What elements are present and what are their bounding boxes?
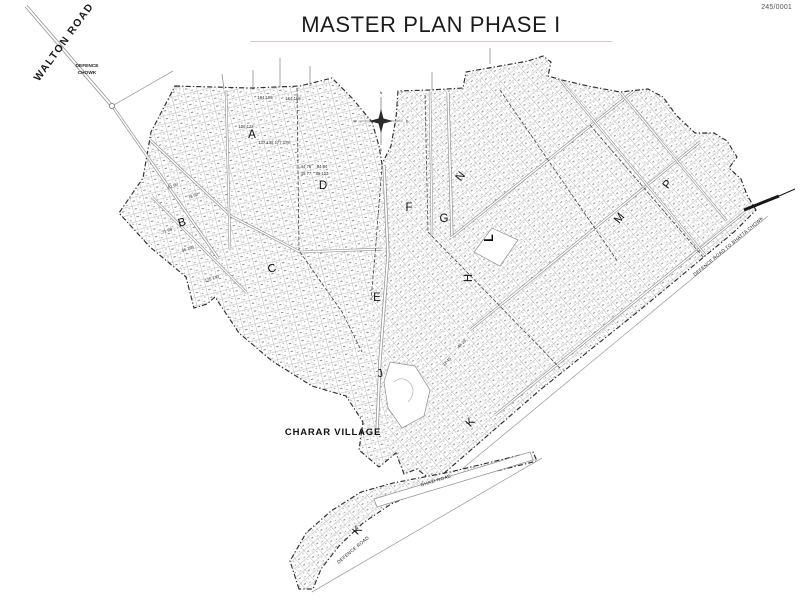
compass-west-label: W: [353, 120, 357, 124]
doc-number: 245/0001: [761, 4, 792, 11]
sector-label-e: E: [373, 292, 381, 304]
sector-label-g: G: [440, 213, 449, 225]
plot-number: 137 138 177 178: [258, 140, 290, 145]
compass-north-label: N: [380, 91, 383, 95]
road-stubs: [222, 48, 490, 90]
strip-fill: [290, 452, 537, 589]
map-fill-right-grid: [370, 40, 798, 520]
sector-label-f: F: [405, 202, 412, 214]
defence-chowk-label-line1: DEFENCE: [76, 63, 100, 69]
bottom-strip: [290, 452, 542, 592]
plot-number: 104 105: [257, 95, 273, 100]
plot-number: 48 77: [301, 171, 312, 176]
defence-chowk-label-line2: CHOWK: [78, 70, 97, 76]
defence-chowk-roundabout: [109, 103, 114, 108]
map-body: [119, 40, 798, 520]
sector-label-d: D: [319, 180, 327, 192]
sector-label-h: H: [463, 274, 475, 282]
plot-number: 164 166: [285, 96, 301, 101]
page-title: MASTER PLAN PHASE I: [250, 12, 612, 42]
sector-label-a: A: [248, 129, 256, 141]
master-plan-map: N S E W WALTON ROAD DEFENCE CHOWK CHARAR…: [0, 0, 800, 600]
plot-number: 44 76: [301, 164, 312, 169]
charar-village-label: CHARAR VILLAGE: [285, 427, 381, 438]
defence-road-bold-tail: [779, 189, 795, 196]
plot-number: 108 122: [238, 124, 254, 129]
master-plan-page: 245/0001 MASTER PLAN PHASE I: [0, 0, 800, 600]
plot-number: 84 84: [317, 164, 328, 169]
compass-south-label: S: [380, 148, 383, 152]
sector-label-l: L: [482, 234, 496, 242]
plot-number: 86 123: [316, 171, 329, 176]
